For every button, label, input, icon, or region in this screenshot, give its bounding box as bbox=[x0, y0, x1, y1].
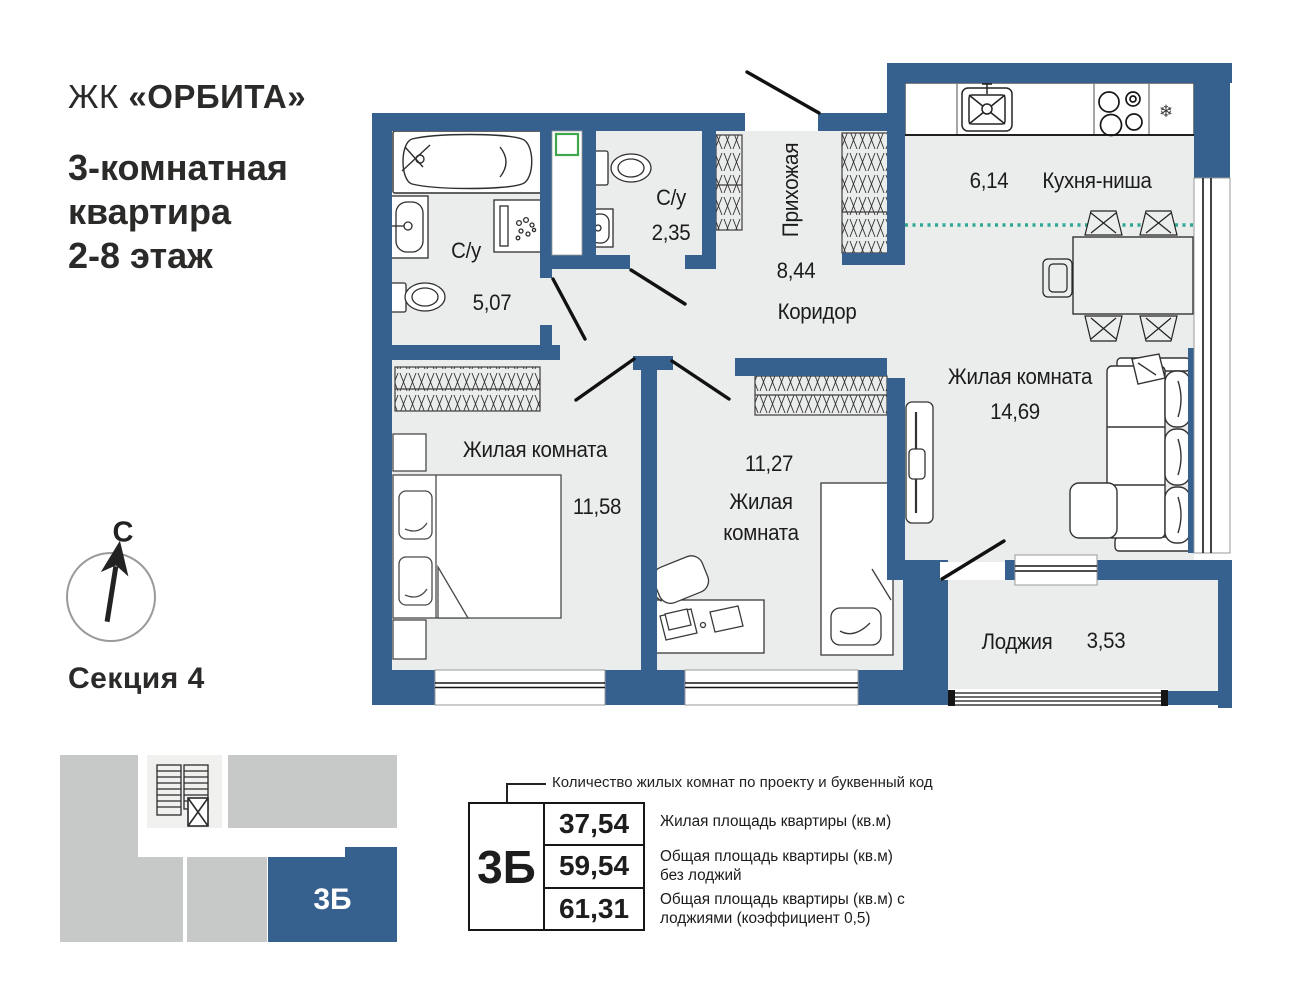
room-area-living: 14,69 bbox=[990, 399, 1040, 425]
floorplan-drawing: ❄ bbox=[372, 63, 1242, 713]
legend-unit-code: 3Б bbox=[470, 804, 545, 929]
toilet-icon-bath2 bbox=[587, 151, 651, 185]
minimap-block-topright bbox=[228, 755, 397, 828]
legend-callout-text: Количество жилых комнат по проекту и бук… bbox=[552, 774, 933, 791]
minimap-block-1 bbox=[100, 857, 183, 942]
vent-shaft bbox=[552, 131, 582, 255]
room-area-loggia: 3,53 bbox=[1087, 628, 1126, 654]
room-label-living: Жилая комната bbox=[948, 364, 1092, 390]
minimap-unit-code: 3Б bbox=[313, 883, 351, 917]
compass-north-label: С bbox=[113, 517, 134, 550]
desk bbox=[650, 600, 764, 653]
nightstand-2 bbox=[393, 620, 426, 659]
legend-value-living: 37,54 bbox=[545, 804, 643, 846]
apartment-type-line2: квартира bbox=[68, 190, 288, 234]
room-label-corridor: Коридор bbox=[778, 299, 857, 325]
elevator-icon bbox=[188, 798, 208, 826]
room-label-bedroom2: Жилая комната bbox=[703, 486, 818, 548]
complex-title: ЖК «ОРБИТА» bbox=[68, 78, 306, 116]
apartment-type: 3-комнатная квартира 2-8 этаж bbox=[68, 146, 288, 278]
entrance-door bbox=[747, 72, 819, 113]
room-area-bedroom1: 11,58 bbox=[573, 494, 621, 520]
legend-value-total: 59,54 bbox=[545, 846, 643, 888]
room-area-bedroom2: 11,27 bbox=[745, 451, 793, 477]
room-area-kitchen: 6,14 bbox=[970, 168, 1009, 194]
bathroom-sink-icon bbox=[391, 196, 428, 258]
legend-values: 37,54 59,54 61,31 bbox=[545, 804, 643, 929]
minimap-unit-highlight: 3Б bbox=[268, 857, 397, 942]
room-label-loggia: Лоджия bbox=[982, 629, 1053, 655]
room-area-bath1: 5,07 bbox=[473, 290, 512, 316]
legend-label-living: Жилая площадь квартиры (кв.м) bbox=[660, 813, 918, 832]
floorplan-page: { "header": { "complex_prefix": "ЖК", "c… bbox=[0, 0, 1305, 1000]
dining-table bbox=[1073, 237, 1193, 314]
minimap-block-2 bbox=[187, 857, 267, 942]
apartment-type-line3: 2-8 этаж bbox=[68, 234, 288, 278]
stairs-elevator-icon bbox=[147, 755, 222, 828]
tv-unit bbox=[906, 402, 933, 523]
room-label-bath2: С/у bbox=[656, 185, 686, 211]
legend-value-total-loggia: 61,31 bbox=[545, 889, 643, 929]
legend-table: 3Б 37,54 59,54 61,31 bbox=[468, 802, 645, 931]
room-label-kitchen: Кухня-ниша bbox=[1042, 168, 1151, 194]
kitchen-counter bbox=[905, 83, 1194, 135]
legend-label-total-loggia: Общая площадь квартиры (кв.м) с лоджиями… bbox=[660, 891, 918, 928]
complex-prefix: ЖК bbox=[68, 78, 119, 115]
bathtub-icon bbox=[393, 131, 546, 193]
toilet-icon-bath1 bbox=[390, 283, 445, 312]
nightstand-1 bbox=[393, 434, 426, 471]
bed-double bbox=[393, 475, 561, 618]
bed-single bbox=[821, 483, 893, 655]
section-label: Секция 4 bbox=[68, 662, 205, 696]
room-label-bath1: С/у bbox=[451, 238, 481, 264]
legend-label-total: Общая площадь квартиры (кв.м) без лоджий bbox=[660, 848, 918, 885]
washing-machine-icon bbox=[494, 200, 542, 252]
apartment-type-line1: 3-комнатная bbox=[68, 146, 288, 190]
room-area-bath2: 2,35 bbox=[652, 220, 691, 246]
vent-marker-green bbox=[556, 134, 578, 155]
room-area-hallway: 8,44 bbox=[777, 258, 816, 284]
room-label-bedroom1: Жилая комната bbox=[463, 437, 607, 463]
room-label-hallway: Прихожая bbox=[778, 143, 804, 238]
fridge-snowflake-icon: ❄ bbox=[1159, 102, 1173, 121]
minimap-stairwell bbox=[147, 755, 222, 828]
complex-name: «ОРБИТА» bbox=[128, 78, 306, 115]
north-arrow-icon bbox=[93, 539, 133, 624]
